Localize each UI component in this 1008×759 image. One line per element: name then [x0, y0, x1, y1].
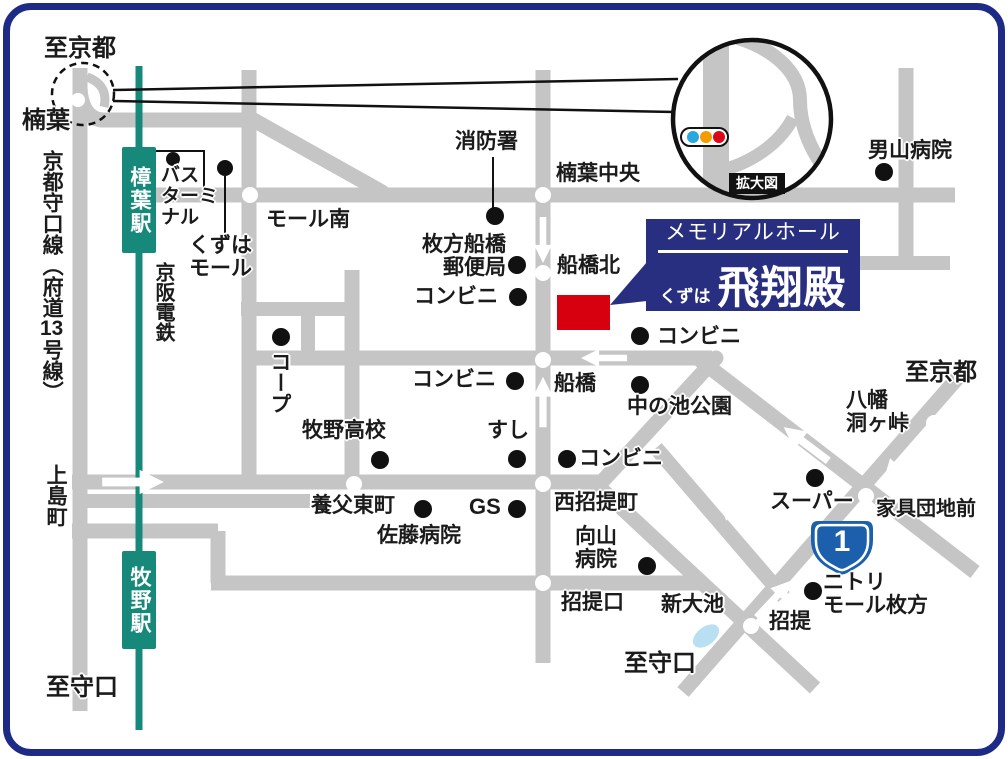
label-otokoyama-hospital: 男山病院	[868, 139, 952, 162]
poi-dot-coop	[272, 328, 290, 346]
poi-dot-convenience-1	[509, 288, 527, 306]
label-sato-hospital: 佐藤病院	[377, 524, 461, 547]
poi-dot-post-office	[508, 256, 526, 274]
access-map: 樟葉駅 牧野駅 メモリアルホール くずは 飛翔殿 拡大図 1 至京都 楠葉 京都…	[0, 0, 1008, 759]
label-coop: コープ	[268, 351, 291, 414]
poi-dot-otokoyama-hospital	[875, 163, 893, 181]
label-sushi: すし	[487, 419, 529, 442]
destination-marker	[557, 295, 610, 330]
label-nitori: ニトリ モール枚方	[823, 571, 928, 617]
label-funabashi-kita: 船橋北	[557, 254, 620, 277]
label-to-kyoto-e: 至京都	[905, 360, 977, 386]
label-kuzuha-chuo: 楠葉中央	[556, 162, 640, 185]
poi-dot-sushi	[508, 450, 526, 468]
intersection-dot-kagu-danchi	[858, 488, 874, 504]
label-shin-oike: 新大池	[661, 593, 724, 616]
label-bus-terminal: バス ターミ ナル	[161, 166, 218, 229]
label-mukaiyama-hospital: 向山 病院	[575, 525, 617, 571]
station-kuzuha: 樟葉駅	[122, 147, 156, 253]
label-shodai-guchi: 招提口	[561, 591, 624, 614]
poi-dot-nakanoike-park	[631, 376, 649, 394]
intersection-dot-nishi-shodai	[535, 476, 551, 492]
label-fire-station: 消防署	[455, 130, 518, 153]
label-funabashi: 船橋	[554, 372, 596, 395]
label-convenience-4: コンビニ	[579, 447, 663, 470]
road-d2b	[656, 448, 784, 597]
banner-title: メモリアルホール	[658, 215, 848, 253]
road-d0-diagonal	[250, 118, 382, 192]
label-kyoto-moriguchi-line: 京都守口線（府道13号線）	[40, 150, 63, 402]
poi-dot-mukaiyama-hospital	[638, 557, 656, 575]
intersection-dot-shodai	[743, 618, 759, 634]
inset-caption: 拡大図	[729, 173, 785, 194]
poi-dot-fire-station	[486, 207, 504, 225]
intersection-dot-kuzuha-chuo	[535, 187, 551, 203]
label-yawata-horagatoge: 八幡 洞ヶ峠	[846, 389, 909, 435]
memorial-hall-banner: メモリアルホール くずは 飛翔殿	[646, 219, 860, 311]
intersection-dot	[71, 93, 85, 107]
label-super-market: スーパー	[770, 490, 854, 513]
label-to-moriguchi-sw: 至守口	[46, 675, 118, 701]
poi-dot-super	[806, 469, 824, 487]
intersection-dot-funabashi	[535, 352, 551, 368]
label-kuzuha-mall: くずは モール	[189, 234, 252, 280]
label-mall-south: モール南	[266, 208, 350, 231]
intersection-dot-horagatoge	[926, 415, 942, 431]
label-kamijima-cho: 上島町	[44, 464, 67, 527]
poi-dot-sato-hospital	[414, 500, 432, 518]
label-kuzuha-junction: 楠葉	[22, 108, 70, 134]
traffic-light-icon	[681, 128, 728, 146]
magnifier-cone-top-line	[113, 79, 678, 90]
intersection-dot	[346, 476, 362, 492]
label-makino-high-school: 牧野高校	[302, 419, 386, 442]
label-to-moriguchi-se: 至守口	[624, 651, 696, 677]
intersection-dot-shodai-guchi	[535, 575, 551, 591]
banner-subtitle: くずは	[659, 282, 710, 307]
label-yabu-higashimachi: 養父東町	[311, 494, 395, 517]
poi-dot-nitori	[804, 582, 822, 600]
poi-dot-makino-hs	[371, 451, 389, 469]
label-convenience-3: コンビニ	[412, 368, 496, 391]
label-nishi-shodai-cho: 西招提町	[554, 491, 638, 514]
intersection-dot-funabashi-kita	[535, 265, 551, 281]
arrow-right-icon	[102, 470, 164, 494]
label-shodai: 招提	[769, 610, 811, 633]
poi-dot-bus-terminal	[166, 152, 180, 166]
label-convenience-1: コンビニ	[414, 285, 498, 308]
station-makino: 牧野駅	[122, 551, 156, 649]
label-gas-station: GS	[469, 495, 501, 519]
route1-number: 1	[812, 525, 872, 559]
poi-dot-convenience-2	[631, 327, 649, 345]
magnifier-cone-bottom-line	[113, 101, 675, 112]
label-kagu-danchi-mae: 家具団地前	[876, 498, 976, 520]
intersection-dot	[242, 187, 258, 203]
poi-dot-kuzuha-mall	[217, 160, 233, 176]
poi-dot-convenience-3	[506, 372, 524, 390]
poi-dot-convenience-4	[558, 450, 576, 468]
poi-dot-gs	[508, 500, 526, 518]
label-post-office: 枚方船橋 郵便局	[421, 233, 506, 279]
banner-hall-name: 飛翔殿	[717, 252, 846, 317]
label-keihan-railway: 京阪電鉄	[152, 262, 174, 342]
label-nakanoike-park: 中の池公園	[627, 395, 732, 418]
label-convenience-2: コンビニ	[657, 325, 741, 348]
label-to-kyoto-nw: 至京都	[44, 36, 116, 62]
